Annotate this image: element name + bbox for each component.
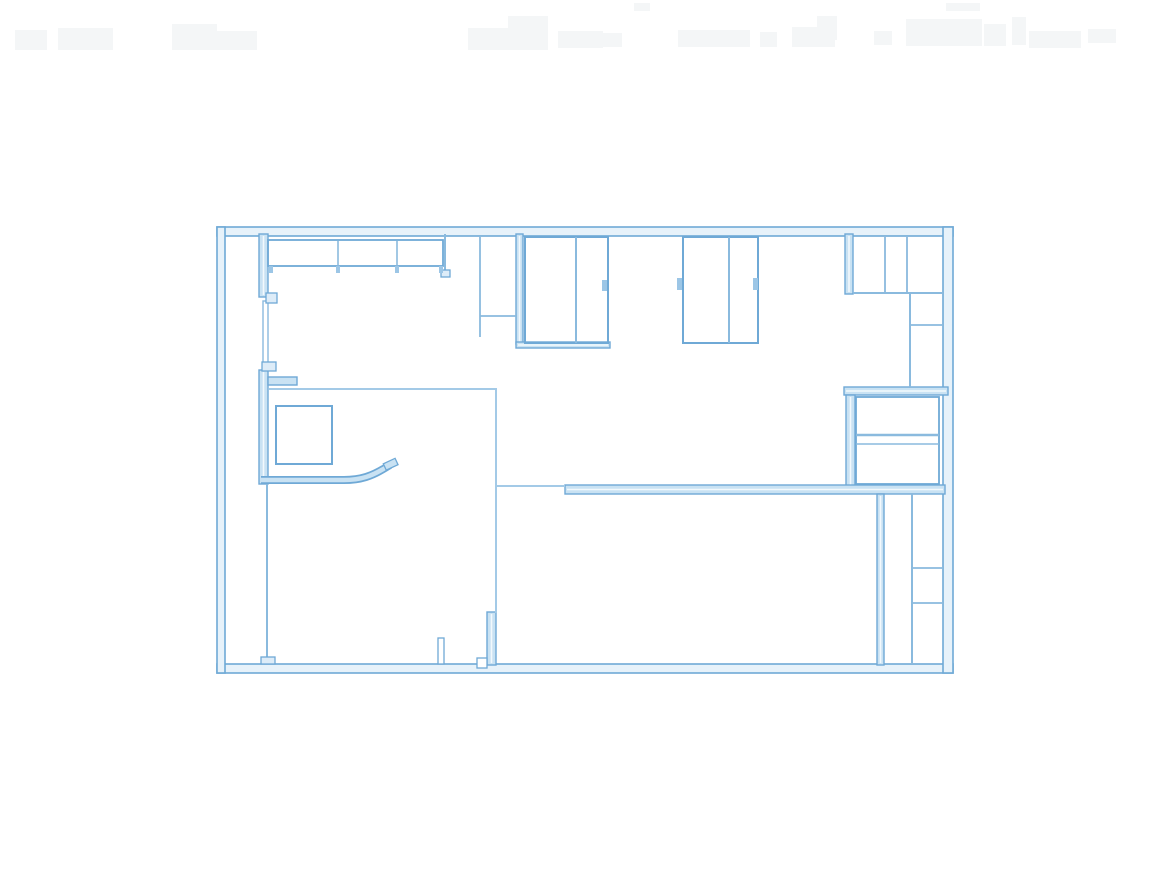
smudge-mark (946, 3, 980, 11)
closet2-handle-right (753, 278, 758, 290)
smudge-mark (984, 24, 1006, 46)
smudge-mark (58, 28, 113, 50)
sliding-closet-2 (683, 237, 758, 343)
thin-wall-segments (263, 301, 268, 363)
cabinet-tick-2 (336, 266, 340, 273)
interior-thick-walls (259, 234, 948, 665)
outer-walls (217, 227, 953, 673)
smudge-mark (817, 16, 837, 40)
smudge-mark (584, 33, 622, 47)
cabinet-tick-3 (395, 266, 399, 273)
left-wall-jog (268, 377, 297, 385)
door-stop-notch (477, 658, 487, 668)
cabinet-row (268, 240, 443, 266)
left-wall-thin-segment (263, 301, 268, 363)
handle-ticks (269, 266, 758, 291)
cabinet-tick-1 (269, 266, 273, 273)
floor-plan-page (0, 0, 1168, 880)
closet2-handle-left (677, 278, 682, 290)
smudge-mark (1012, 17, 1026, 45)
sliding-closet-1 (525, 237, 608, 343)
smudge-mark (906, 19, 982, 46)
left-wall-nub-lower (262, 362, 276, 371)
smudge-mark (874, 31, 892, 45)
top-edge-smudges (15, 3, 1116, 50)
thin-lines (267, 234, 943, 663)
floor-plan-canvas (0, 0, 1168, 880)
cabinet-tick-4 (439, 266, 443, 273)
closet-square (276, 406, 332, 464)
smudge-mark (1029, 31, 1081, 48)
midright-room-box (856, 397, 939, 484)
outer-wall-bottom (217, 664, 953, 673)
outer-wall-left (217, 227, 225, 673)
smudge-mark (15, 30, 47, 50)
smudge-mark (678, 30, 750, 47)
left-wall-nub-upper (266, 293, 277, 303)
smudge-mark (760, 32, 777, 47)
room-outlines (268, 237, 939, 484)
smudge-mark (172, 24, 217, 50)
smudge-mark (1088, 29, 1116, 43)
wall-nubs (261, 270, 487, 668)
closet1-handle (602, 280, 607, 291)
curved-wall (261, 458, 398, 480)
smudge-mark (215, 31, 257, 50)
outer-wall-right (943, 227, 953, 673)
smudge-mark (508, 16, 548, 50)
outer-wall-top (217, 227, 953, 236)
left-line-foot (261, 657, 275, 664)
door-jamb-post (438, 638, 444, 664)
smudge-mark (634, 3, 650, 11)
curved-interior-wall-endcap (383, 458, 398, 470)
